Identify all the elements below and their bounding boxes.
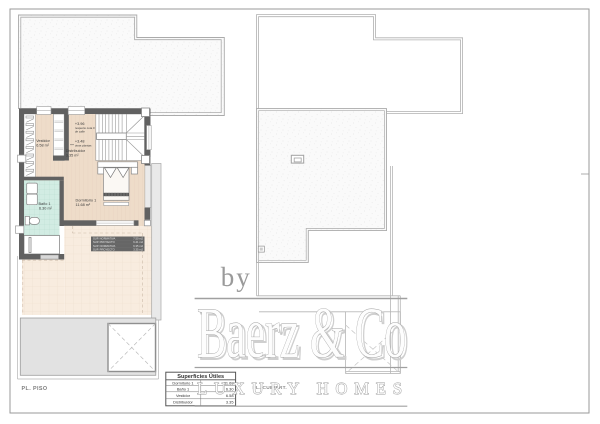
- svg-text:Baño 1: Baño 1: [177, 387, 189, 392]
- svg-text:11.68 m²: 11.68 m²: [76, 203, 91, 207]
- svg-text:7.50 m2: 7.50 m2: [133, 236, 143, 240]
- svg-text:PL. PISO: PL. PISO: [22, 386, 48, 392]
- svg-text:SUP. PROYECTO: SUP. PROYECTO: [93, 247, 115, 251]
- svg-text:6.41 m2: 6.41 m2: [133, 240, 143, 244]
- svg-text:otras plantas: otras plantas: [75, 144, 92, 148]
- svg-text:by: by: [221, 262, 252, 292]
- svg-text:de calle: de calle: [75, 129, 85, 133]
- svg-text:Baerz & Co: Baerz & Co: [197, 293, 406, 373]
- svg-text:SUP. PROYECTO: SUP. PROYECTO: [93, 240, 115, 244]
- svg-text:Distribuidor: Distribuidor: [66, 149, 86, 153]
- svg-text:Dormitorio 1: Dormitorio 1: [76, 199, 97, 203]
- svg-text:SUP. NORMATIVA: SUP. NORMATIVA: [93, 244, 115, 248]
- svg-text:6.30 m²: 6.30 m²: [39, 207, 53, 211]
- svg-text:SUP. NORMATIVA: SUP. NORMATIVA: [93, 236, 115, 240]
- svg-text:Vestidor: Vestidor: [36, 139, 50, 143]
- svg-text:Distribuidor: Distribuidor: [173, 400, 193, 405]
- svg-text:6.35 m2: 6.35 m2: [133, 244, 143, 248]
- svg-text:3.35: 3.35: [226, 400, 234, 405]
- svg-text:LUXURY HOMES: LUXURY HOMES: [197, 379, 408, 398]
- svg-text:6.58 m²: 6.58 m²: [36, 143, 50, 147]
- svg-text:Baño 1: Baño 1: [39, 202, 51, 206]
- svg-text:Vestidor: Vestidor: [176, 393, 191, 398]
- svg-text:3.35 m2: 3.35 m2: [133, 247, 143, 251]
- svg-text:3.35 m²: 3.35 m²: [66, 154, 80, 158]
- svg-text:Dormitorio 1: Dormitorio 1: [172, 380, 193, 385]
